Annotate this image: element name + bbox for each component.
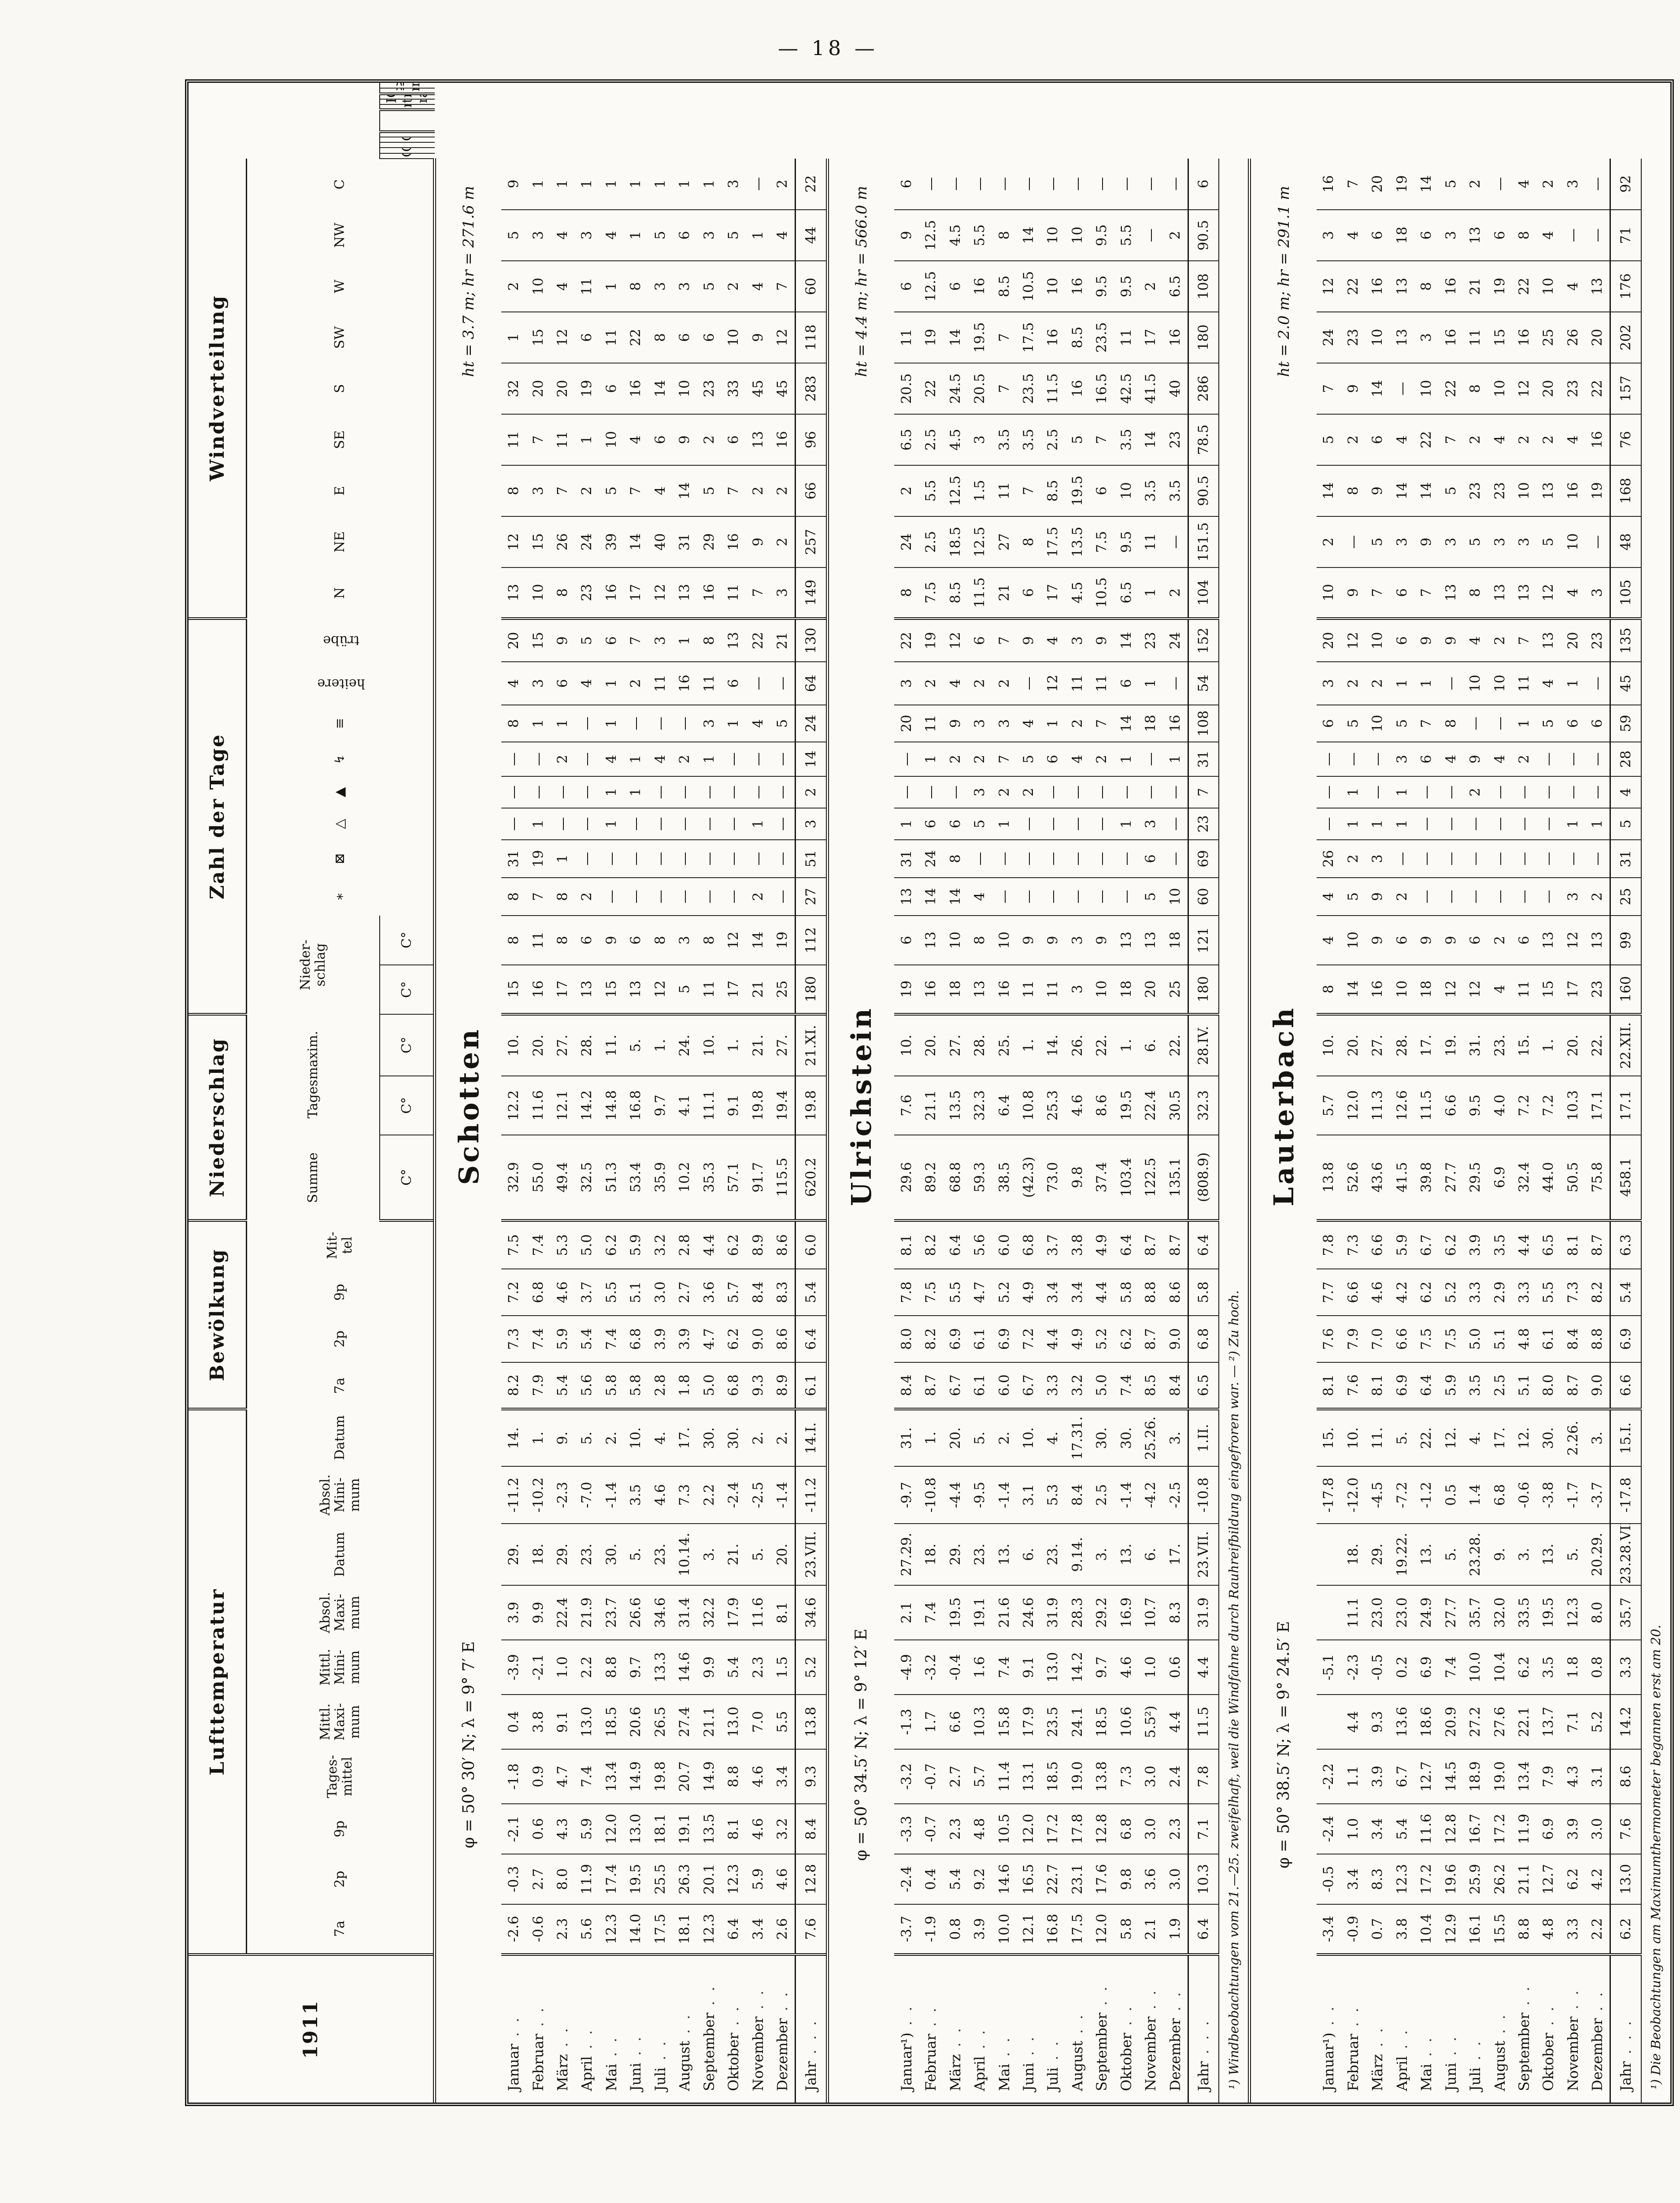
cell-ulrichstein-r4-c19: —	[992, 878, 1016, 916]
cell-lauterbach-r6-c2: 16.7	[1463, 1804, 1487, 1854]
cell-lauterbach-r8-c30: 2	[1512, 414, 1536, 465]
cell-ulrichstein-r4-c29: 11	[992, 465, 1016, 516]
cell-ulrichstein-r6-c3: 18.5	[1041, 1749, 1065, 1804]
cell-ulrichstein-r3-c22: 3	[967, 776, 992, 808]
cell-schotten-r5-c26: 7	[624, 619, 648, 662]
cell-lauterbach-r10-c20: —	[1561, 840, 1585, 878]
cell-lauterbach-r0-c33: 12	[1317, 261, 1341, 312]
cell-ulrichstein-r10-c19: 5	[1138, 878, 1162, 916]
cell-schotten-r3-c2: 5.9	[575, 1804, 599, 1854]
cell-schotten-r3-c5: 2.2	[575, 1640, 599, 1695]
row-label: Dezember	[1585, 1955, 1610, 2103]
cell-lauterbach-r3-c13: 5.9	[1390, 1220, 1414, 1269]
cell-ulrichstein-r3-c13: 5.6	[967, 1220, 992, 1269]
cell-lauterbach-r0-c4	[1317, 1695, 1341, 1749]
cell-ulrichstein-r3-c25: 2	[967, 662, 992, 705]
cell-lauterbach-r4-c31: 10	[1414, 363, 1438, 414]
cell-schotten-r4-c28: 39	[599, 516, 623, 567]
cell-ulrichstein-r8-c4: 18.5	[1090, 1695, 1114, 1749]
cell-lauterbach-r4-c1: 17.2	[1414, 1854, 1438, 1904]
row-label: November	[1138, 1955, 1162, 2103]
cell-ulrichstein-r3-c9: 5.	[967, 1409, 992, 1466]
cell-lauterbach-r5-c24: 8	[1439, 705, 1463, 742]
cell-schotten-r2-c20: 1	[550, 840, 574, 878]
cell-lauterbach-r2-c26: 10	[1365, 619, 1390, 662]
cell-ulrichstein-r3-c29: 1.5	[967, 465, 992, 516]
cell-ulrichstein-r1-c3: -0.7	[919, 1749, 943, 1804]
cell-schotten-r9-c6: 17.9	[721, 1585, 745, 1640]
cell-ulrichstein-r1-c33: 12.5	[919, 261, 943, 312]
cell-schotten-r10-c7: 5.	[746, 1524, 770, 1585]
cell-ulrichstein-r1-c6: 7.4	[919, 1585, 943, 1640]
cell-lauterbach-r10-c33: 4	[1561, 261, 1585, 312]
graupel-icon: △	[247, 808, 435, 840]
cell-ulrichstein-r0-c1: -2.4	[894, 1854, 918, 1904]
cell-ulrichstein-r7-c9: 17.31.	[1065, 1409, 1089, 1466]
cell-lauterbach-r2-c15: 11.3	[1365, 1076, 1390, 1135]
cell-schotten-r8-c14: 35.3	[697, 1135, 721, 1220]
month-row-lauterbach-2: März0.78.33.43.99.3-0.523.029.-4.511.8.1…	[1365, 83, 1390, 2103]
cell-lauterbach-r12-c31: 157	[1610, 363, 1641, 414]
cell-lauterbach-r7-c9: 17.	[1488, 1409, 1512, 1466]
station-coords-schotten: φ = 50° 30′ N; λ = 9° 7′ E	[460, 1388, 478, 2102]
cell-schotten-r12-c34: 44	[795, 210, 827, 261]
cell-lauterbach-r12-c3: 8.6	[1610, 1749, 1641, 1804]
cell-lauterbach-r8-c33: 22	[1512, 261, 1536, 312]
cell-lauterbach-r6-c13: 3.9	[1463, 1220, 1487, 1269]
cell-lauterbach-r4-c15: 11.5	[1414, 1076, 1438, 1135]
cell-ulrichstein-r10-c20: 6	[1138, 840, 1162, 878]
cell-lauterbach-r6-c10: 3.5	[1463, 1362, 1487, 1409]
cell-lauterbach-r12-c16: 22.XII.	[1610, 1014, 1641, 1076]
cell-lauterbach-r4-c21: —	[1414, 808, 1438, 840]
cell-lauterbach-r4-c5: 6.9	[1414, 1640, 1438, 1695]
cell-lauterbach-r6-c18: 6	[1463, 916, 1487, 965]
row-label: November	[746, 1955, 770, 2103]
cell-lauterbach-r6-c24: —	[1463, 705, 1487, 742]
cell-ulrichstein-r4-c3: 11.4	[992, 1749, 1016, 1804]
footnote-text-lauterbach: ¹) Die Beobachtungen am Maximumthermomet…	[1641, 159, 1670, 2103]
cell-schotten-r7-c3: 20.7	[672, 1749, 696, 1804]
cell-lauterbach-r9-c18: 13	[1536, 916, 1561, 965]
cell-ulrichstein-r5-c33: 10.5	[1016, 261, 1040, 312]
cell-schotten-r12-c16: 21.XI.	[795, 1014, 827, 1076]
cell-lauterbach-r11-c28: —	[1585, 516, 1610, 567]
row-label: November	[1561, 1955, 1585, 2103]
row-label: Januar	[501, 1955, 525, 2103]
cell-lauterbach-r9-c5: 3.5	[1536, 1640, 1561, 1695]
cell-ulrichstein-r12-c4: 11.5	[1188, 1695, 1219, 1749]
cell-lauterbach-r10-c0: 3.3	[1561, 1904, 1585, 1955]
cell-schotten-r12-c25: 64	[795, 662, 827, 705]
cell-schotten-r6-c30: 6	[648, 414, 672, 465]
cell-lauterbach-r0-c1: -0.5	[1317, 1854, 1341, 1904]
cell-lauterbach-r12-c26: 135	[1610, 619, 1641, 662]
month-row-schotten-7: August18.126.319.120.727.414.631.410.14.…	[672, 83, 696, 2103]
cell-ulrichstein-r6-c21: —	[1041, 808, 1065, 840]
cell-schotten-r9-c24: 1	[721, 705, 745, 742]
cell-ulrichstein-r7-c30: 5	[1065, 414, 1089, 465]
cell-lauterbach-r0-c17: 8	[1317, 965, 1341, 1014]
cell-schotten-r5-c22: 1	[624, 776, 648, 808]
cell-ulrichstein-r10-c11: 8.7	[1138, 1316, 1162, 1362]
col-gemessen-am: Ge- messen am	[380, 94, 435, 99]
cell-ulrichstein-r10-c21: 3	[1138, 808, 1162, 840]
cell-schotten-r6-c5: 13.3	[648, 1640, 672, 1695]
cell-lauterbach-r2-c20: 3	[1365, 840, 1390, 878]
cell-lauterbach-r3-c27: 6	[1390, 567, 1414, 619]
cell-ulrichstein-r3-c31: 20.5	[967, 363, 992, 414]
cell-ulrichstein-r12-c15: 32.3	[1188, 1076, 1219, 1135]
cell-lauterbach-r8-c34: 8	[1512, 210, 1536, 261]
cell-lauterbach-r8-c1: 21.1	[1512, 1854, 1536, 1904]
cell-schotten-r11-c35: 2	[770, 159, 795, 210]
cell-ulrichstein-r9-c35: —	[1114, 159, 1138, 210]
cell-ulrichstein-r10-c3: 3.0	[1138, 1749, 1162, 1804]
cell-ulrichstein-r2-c20: 8	[943, 840, 967, 878]
cell-lauterbach-r3-c25: 1	[1390, 662, 1414, 705]
month-row-ulrichstein-8: September12.017.612.813.818.59.729.23.2.…	[1090, 83, 1114, 2103]
cell-ulrichstein-r0-c20: 31	[894, 840, 918, 878]
cell-ulrichstein-r3-c12: 4.7	[967, 1269, 992, 1316]
cell-ulrichstein-r2-c7: 29.	[943, 1524, 967, 1585]
cell-lauterbach-r10-c34: —	[1561, 210, 1585, 261]
cell-ulrichstein-r11-c13: 8.7	[1163, 1220, 1188, 1269]
cell-schotten-r1-c12: 6.8	[526, 1269, 550, 1316]
cell-ulrichstein-r5-c24: 4	[1016, 705, 1040, 742]
cell-schotten-r5-c12: 5.1	[624, 1269, 648, 1316]
cell-schotten-r10-c23: —	[746, 742, 770, 776]
cell-schotten-r8-c18: 8	[697, 916, 721, 965]
cell-ulrichstein-r0-c34: 9	[894, 210, 918, 261]
cell-lauterbach-r5-c30: 7	[1439, 414, 1463, 465]
cell-ulrichstein-r5-c21: —	[1016, 808, 1040, 840]
cell-ulrichstein-r5-c9: 10.	[1016, 1409, 1040, 1466]
cell-ulrichstein-r1-c1: 0.4	[919, 1854, 943, 1904]
cell-lauterbach-r11-c8: -3.7	[1585, 1466, 1610, 1524]
cell-ulrichstein-r4-c10: 6.0	[992, 1362, 1016, 1409]
cell-ulrichstein-r11-c21: —	[1163, 808, 1188, 840]
col-mittl-max: Mittl. Maxi- mum	[247, 1695, 435, 1749]
cell-ulrichstein-r8-c26: 9	[1090, 619, 1114, 662]
cell-lauterbach-r3-c34: 18	[1390, 210, 1414, 261]
cell-ulrichstein-r5-c28: 8	[1016, 516, 1040, 567]
cell-schotten-r4-c25: 1	[599, 662, 623, 705]
cell-schotten-r7-c34: 6	[672, 210, 696, 261]
cell-lauterbach-r0-c6	[1317, 1585, 1341, 1640]
cell-schotten-r1-c18: 11	[526, 916, 550, 965]
cell-ulrichstein-r0-c24: 20	[894, 705, 918, 742]
cell-lauterbach-r7-c17: 4	[1488, 965, 1512, 1014]
cell-schotten-r8-c10: 5.0	[697, 1362, 721, 1409]
cell-schotten-r11-c24: 5	[770, 705, 795, 742]
cell-lauterbach-r2-c16: 27.	[1365, 1014, 1390, 1076]
cell-lauterbach-r9-c32: 25	[1536, 312, 1561, 363]
cell-ulrichstein-r2-c25: 4	[943, 662, 967, 705]
cell-schotten-r1-c23: —	[526, 742, 550, 776]
cell-lauterbach-r6-c31: 8	[1463, 363, 1487, 414]
cell-schotten-r11-c15: 19.4	[770, 1076, 795, 1135]
cell-lauterbach-r1-c30: 2	[1341, 414, 1365, 465]
cell-lauterbach-r8-c19: —	[1512, 878, 1536, 916]
cell-ulrichstein-r8-c27: 10.5	[1090, 567, 1114, 619]
cell-ulrichstein-r11-c32: 16	[1163, 312, 1188, 363]
cell-lauterbach-r7-c14: 6.9	[1488, 1135, 1512, 1220]
cell-schotten-r2-c15: 12.1	[550, 1076, 574, 1135]
cell-lauterbach-r4-c11: 7.5	[1414, 1316, 1438, 1362]
cell-lauterbach-r4-c17: 18	[1414, 965, 1438, 1014]
row-label: Mai	[1414, 1955, 1438, 2103]
cell-ulrichstein-r9-c11: 6.2	[1114, 1316, 1138, 1362]
cell-ulrichstein-r10-c35: —	[1138, 159, 1162, 210]
cell-ulrichstein-r1-c7: 18.	[919, 1524, 943, 1585]
cell-schotten-r10-c20: —	[746, 840, 770, 878]
cell-schotten-r4-c19: —	[599, 878, 623, 916]
cell-schotten-r12-c8: -11.2	[795, 1466, 827, 1524]
cell-schotten-r8-c27: 16	[697, 567, 721, 619]
month-row-schotten-3: April5.611.95.97.413.02.221.923.-7.05.5.…	[575, 83, 599, 2103]
cell-lauterbach-r3-c35: 19	[1390, 159, 1414, 210]
cell-ulrichstein-r2-c28: 18.5	[943, 516, 967, 567]
cell-schotten-r12-c9: 14.I.	[795, 1409, 827, 1466]
cell-ulrichstein-r2-c30: 4.5	[943, 414, 967, 465]
cell-lauterbach-r10-c27: 4	[1561, 567, 1585, 619]
cell-ulrichstein-r9-c33: 9.5	[1114, 261, 1138, 312]
cell-ulrichstein-r4-c15: 6.4	[992, 1076, 1016, 1135]
cell-ulrichstein-r12-c16: 28.IV.	[1188, 1014, 1219, 1076]
cell-lauterbach-r10-c5: 1.8	[1561, 1640, 1585, 1695]
cell-schotten-r10-c14: 91.7	[746, 1135, 770, 1220]
cell-schotten-r7-c21: —	[672, 808, 696, 840]
cell-lauterbach-r10-c4: 7.1	[1561, 1695, 1585, 1749]
cell-schotten-r9-c12: 5.7	[721, 1269, 745, 1316]
cell-lauterbach-r10-c9: 2.26.	[1561, 1409, 1585, 1466]
cell-lauterbach-r9-c30: 2	[1536, 414, 1561, 465]
row-label: Oktober	[721, 1955, 745, 2103]
cell-lauterbach-r2-c5: -0.5	[1365, 1640, 1390, 1695]
cell-lauterbach-r5-c22: —	[1439, 776, 1463, 808]
cell-lauterbach-r0-c25: 3	[1317, 662, 1341, 705]
cell-schotten-r2-c27: 8	[550, 567, 574, 619]
cell-ulrichstein-r11-c7: 17.	[1163, 1524, 1188, 1585]
cell-schotten-r3-c26: 5	[575, 619, 599, 662]
cell-schotten-r6-c16: 1.	[648, 1014, 672, 1076]
cell-ulrichstein-r12-c35: 6	[1188, 159, 1219, 210]
cell-lauterbach-r12-c7: 23.28.VII.	[1610, 1524, 1641, 1585]
cell-lauterbach-r3-c16: 28.	[1390, 1014, 1414, 1076]
cell-lauterbach-r12-c17: 160	[1610, 965, 1641, 1014]
cell-schotten-r7-c1: 26.3	[672, 1854, 696, 1904]
cell-lauterbach-r8-c10: 5.1	[1512, 1362, 1536, 1409]
cell-schotten-r4-c13: 6.2	[599, 1220, 623, 1269]
cell-schotten-r0-c5: -3.9	[501, 1640, 525, 1695]
cell-ulrichstein-r11-c0: 1.9	[1163, 1904, 1188, 1955]
cell-lauterbach-r6-c23: 9	[1463, 742, 1487, 776]
cell-lauterbach-r10-c18: 12	[1561, 916, 1585, 965]
cell-lauterbach-r6-c1: 25.9	[1463, 1854, 1487, 1904]
cell-schotten-r7-c29: 14	[672, 465, 696, 516]
cell-lauterbach-r7-c20: —	[1488, 840, 1512, 878]
cell-ulrichstein-r8-c35: —	[1090, 159, 1114, 210]
cell-ulrichstein-r5-c29: 7	[1016, 465, 1040, 516]
cell-lauterbach-r5-c21: —	[1439, 808, 1463, 840]
cell-lauterbach-r0-c0: -3.4	[1317, 1904, 1341, 1955]
cell-ulrichstein-r4-c16: 25.	[992, 1014, 1016, 1076]
cell-ulrichstein-r4-c26: 7	[992, 619, 1016, 662]
cell-ulrichstein-r9-c6: 16.9	[1114, 1585, 1138, 1640]
cell-schotten-r1-c5: -2.1	[526, 1640, 550, 1695]
cell-schotten-r10-c17: 21	[746, 965, 770, 1014]
cell-lauterbach-r4-c4: 18.6	[1414, 1695, 1438, 1749]
cell-schotten-r3-c21: —	[575, 808, 599, 840]
year-label: 1911	[189, 1955, 435, 2103]
cell-schotten-r6-c32: 8	[648, 312, 672, 363]
cell-schotten-r7-c14: 10.2	[672, 1135, 696, 1220]
cell-schotten-r11-c5: 1.5	[770, 1640, 795, 1695]
cell-schotten-r8-c30: 2	[697, 414, 721, 465]
cell-lauterbach-r11-c29: 19	[1585, 465, 1610, 516]
cell-ulrichstein-r2-c2: 2.3	[943, 1804, 967, 1854]
cell-ulrichstein-r10-c23: —	[1138, 742, 1162, 776]
cell-ulrichstein-r7-c26: 3	[1065, 619, 1089, 662]
cell-ulrichstein-r7-c29: 19.5	[1065, 465, 1089, 516]
cell-lauterbach-r4-c13: 6.7	[1414, 1220, 1438, 1269]
cell-ulrichstein-r12-c8: -10.8	[1188, 1466, 1219, 1524]
cell-ulrichstein-r8-c11: 5.2	[1090, 1316, 1114, 1362]
cell-ulrichstein-r10-c17: 20	[1138, 965, 1162, 1014]
cell-schotten-r8-c21: —	[697, 808, 721, 840]
cell-schotten-r3-c20: —	[575, 840, 599, 878]
cell-schotten-r9-c2: 8.1	[721, 1804, 745, 1854]
cell-ulrichstein-r3-c10: 6.1	[967, 1362, 992, 1409]
cell-schotten-r8-c0: 12.3	[697, 1904, 721, 1955]
cell-schotten-r12-c12: 5.4	[795, 1269, 827, 1316]
cell-lauterbach-r3-c26: 6	[1390, 619, 1414, 662]
cell-lauterbach-r11-c4: 5.2	[1585, 1695, 1610, 1749]
cell-lauterbach-r1-c22: 1	[1341, 776, 1365, 808]
cell-schotten-r1-c1: 2.7	[526, 1854, 550, 1904]
cell-lauterbach-r12-c8: -17.8	[1610, 1466, 1641, 1524]
cell-ulrichstein-r7-c13: 3.8	[1065, 1220, 1089, 1269]
cell-schotten-r7-c27: 13	[672, 567, 696, 619]
cell-ulrichstein-r11-c35: —	[1163, 159, 1188, 210]
cell-lauterbach-r0-c18: 4	[1317, 916, 1341, 965]
cell-schotten-r6-c1: 25.5	[648, 1854, 672, 1904]
cell-ulrichstein-r11-c17: 25	[1163, 965, 1188, 1014]
cell-lauterbach-r6-c7: 23.28.	[1463, 1524, 1487, 1585]
cell-lauterbach-r11-c31: 22	[1585, 363, 1610, 414]
cell-ulrichstein-r1-c34: 12.5	[919, 210, 943, 261]
cell-lauterbach-r5-c35: 5	[1439, 159, 1463, 210]
cell-lauterbach-r5-c0: 12.9	[1439, 1904, 1463, 1955]
cell-lauterbach-r2-c8: -4.5	[1365, 1466, 1390, 1524]
cell-ulrichstein-r3-c3: 5.7	[967, 1749, 992, 1804]
cell-lauterbach-r8-c7: 3.	[1512, 1524, 1536, 1585]
cell-ulrichstein-r0-c21: 1	[894, 808, 918, 840]
cell-ulrichstein-r9-c31: 42.5	[1114, 363, 1138, 414]
cell-schotten-r10-c18: 14	[746, 916, 770, 965]
cell-lauterbach-r11-c18: 13	[1585, 916, 1610, 965]
cell-ulrichstein-r8-c10: 5.0	[1090, 1362, 1114, 1409]
cell-lauterbach-r8-c9: 12.	[1512, 1409, 1536, 1466]
cell-lauterbach-r3-c8: -7.2	[1390, 1466, 1414, 1524]
cell-schotten-r10-c25: —	[746, 662, 770, 705]
cell-schotten-r8-c4: 21.1	[697, 1695, 721, 1749]
row-label: Juni	[1439, 1955, 1463, 2103]
cell-ulrichstein-r5-c35: —	[1016, 159, 1040, 210]
cell-lauterbach-r3-c14: 41.5	[1390, 1135, 1414, 1220]
cell-ulrichstein-r7-c34: 10	[1065, 210, 1089, 261]
cell-schotten-r3-c0: 5.6	[575, 1904, 599, 1955]
cell-schotten-r0-c24: 8	[501, 705, 525, 742]
cell-lauterbach-r12-c9: 15.I.	[1610, 1409, 1641, 1466]
cell-ulrichstein-r10-c13: 8.7	[1138, 1220, 1162, 1269]
cell-schotten-r4-c20: —	[599, 840, 623, 878]
cell-ulrichstein-r3-c24: 3	[967, 705, 992, 742]
cell-schotten-r11-c18: 19	[770, 916, 795, 965]
cell-schotten-r0-c6: 3.9	[501, 1585, 525, 1640]
cell-lauterbach-r10-c3: 4.3	[1561, 1749, 1585, 1804]
cell-lauterbach-r9-c8: -3.8	[1536, 1466, 1561, 1524]
cell-ulrichstein-r0-c16: 10.	[894, 1014, 918, 1076]
col-cloud-2p: 2p	[247, 1316, 435, 1362]
cell-schotten-r3-c15: 14.2	[575, 1076, 599, 1135]
month-row-lauterbach-5: Juni12.919.612.814.520.97.427.75.0.512.5…	[1439, 83, 1463, 2103]
cell-ulrichstein-r1-c9: 1.	[919, 1409, 943, 1466]
cell-schotten-r0-c10: 8.2	[501, 1362, 525, 1409]
cell-ulrichstein-r12-c20: 69	[1188, 840, 1219, 878]
cell-lauterbach-r6-c33: 21	[1463, 261, 1487, 312]
cell-ulrichstein-r6-c15: 25.3	[1041, 1076, 1065, 1135]
cell-ulrichstein-r11-c10: 8.4	[1163, 1362, 1188, 1409]
cell-ulrichstein-r9-c22: —	[1114, 776, 1138, 808]
cell-ulrichstein-r11-c24: 16	[1163, 705, 1188, 742]
cell-ulrichstein-r9-c34: 5.5	[1114, 210, 1138, 261]
cell-lauterbach-r9-c19: —	[1536, 878, 1561, 916]
group-lufttemperatur: Lufttemperatur	[189, 1409, 247, 1955]
cell-lauterbach-r9-c6: 19.5	[1536, 1585, 1561, 1640]
row-label: Juli	[648, 1955, 672, 2103]
cell-schotten-r12-c33: 60	[795, 261, 827, 312]
cell-ulrichstein-r1-c2: -0.7	[919, 1804, 943, 1854]
section-header-lauterbach: φ = 50° 38.5′ N; λ = 9° 24.5′ ELauterbac…	[1250, 83, 1317, 2103]
cell-ulrichstein-r6-c0: 16.8	[1041, 1904, 1065, 1955]
cell-lauterbach-r4-c32: 3	[1414, 312, 1438, 363]
cell-lauterbach-r4-c28: 9	[1414, 516, 1438, 567]
row-label: August	[1488, 1955, 1512, 2103]
cell-lauterbach-r0-c31: 7	[1317, 363, 1341, 414]
cell-schotten-r7-c5: 14.6	[672, 1640, 696, 1695]
cell-ulrichstein-r12-c2: 7.1	[1188, 1804, 1219, 1854]
col-wind-s: S	[247, 363, 435, 414]
cell-schotten-r11-c9: 2.	[770, 1409, 795, 1466]
row-label: Februar	[526, 1955, 550, 2103]
cell-ulrichstein-r11-c5: 0.6	[1163, 1640, 1188, 1695]
cell-schotten-r6-c31: 14	[648, 363, 672, 414]
cell-schotten-r2-c13: 5.3	[550, 1220, 574, 1269]
cell-lauterbach-r8-c16: 15.	[1512, 1014, 1536, 1076]
cell-lauterbach-r9-c0: 4.8	[1536, 1904, 1561, 1955]
cell-lauterbach-r0-c29: 14	[1317, 465, 1341, 516]
cell-schotten-r0-c22: —	[501, 776, 525, 808]
cell-schotten-r4-c32: 11	[599, 312, 623, 363]
cell-ulrichstein-r4-c27: 21	[992, 567, 1016, 619]
cell-ulrichstein-r1-c32: 19	[919, 312, 943, 363]
column-label-row: 7a 2p 9p Tages- mittel Mittl. Maxi- mum …	[247, 83, 380, 2103]
cell-lauterbach-r2-c2: 3.4	[1365, 1804, 1390, 1854]
cell-schotten-r4-c17: 15	[599, 965, 623, 1014]
cell-lauterbach-r3-c12: 4.2	[1390, 1269, 1414, 1316]
